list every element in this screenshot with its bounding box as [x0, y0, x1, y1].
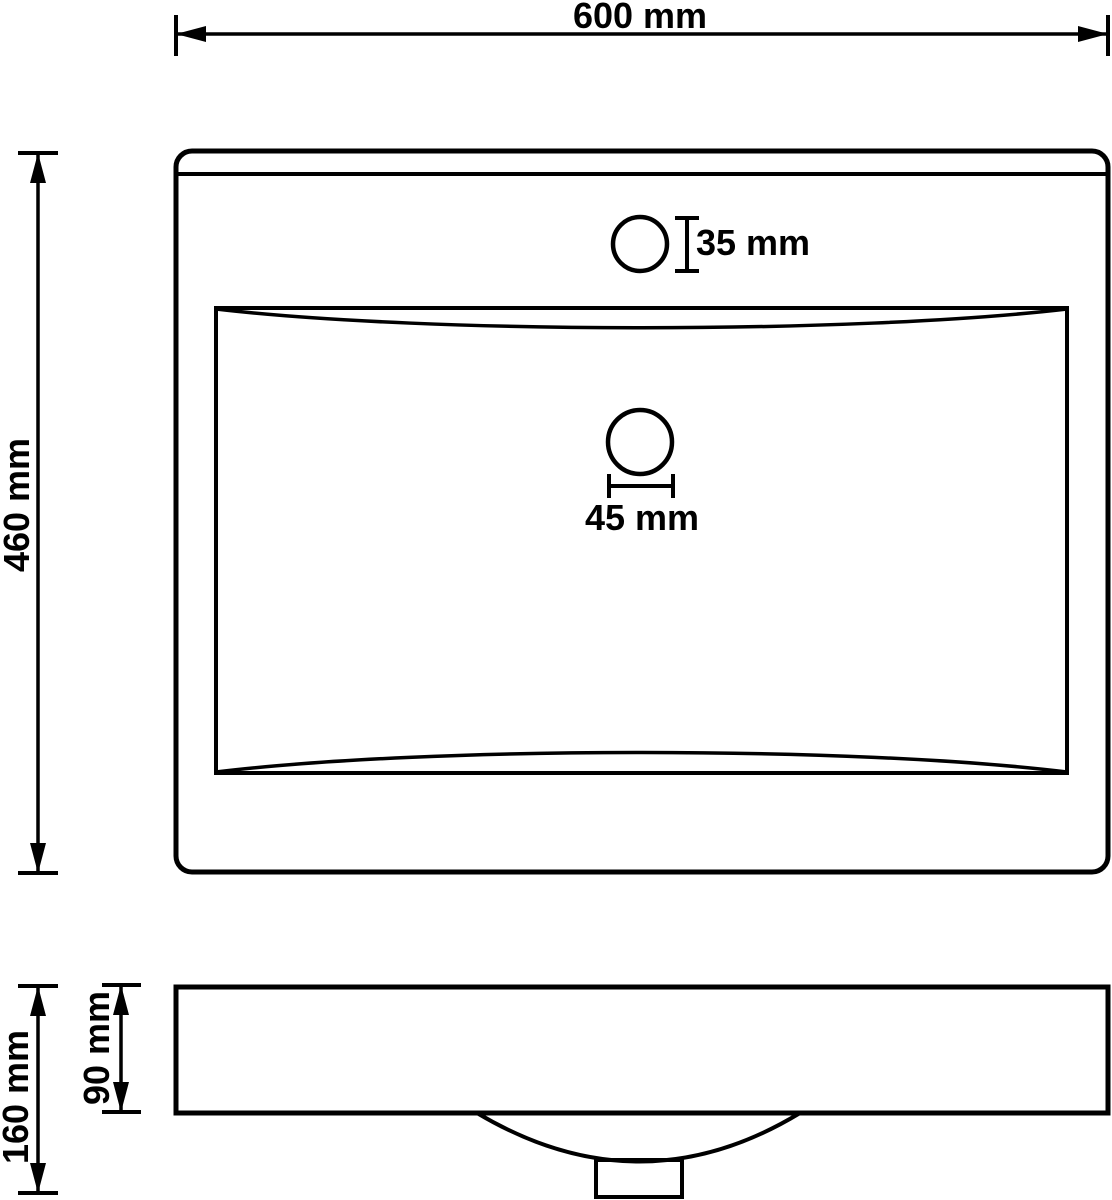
drain-hole-circle: [608, 410, 672, 474]
basin-height-dimension-label: 90 mm: [79, 963, 115, 1133]
height-dimension-label: 460 mm: [0, 420, 35, 590]
faucet-hole-circle: [613, 217, 667, 271]
basin-inner-top-curve: [216, 309, 1067, 328]
dim-600-left-arrow: [176, 26, 206, 42]
dim-600-right-arrow: [1078, 26, 1108, 42]
dim-460-bottom-arrow: [30, 843, 46, 873]
side-drain-pipe-outline: [596, 1160, 682, 1197]
basin-inner-bowl-outline: [216, 308, 1067, 773]
dimension-drain-45: [609, 474, 673, 498]
total-height-dimension-label: 160 mm: [0, 1012, 34, 1182]
width-dimension-label: 600 mm: [560, 0, 720, 34]
side-underside-curve: [477, 1113, 800, 1162]
basin-inner-bottom-curve: [216, 753, 1067, 773]
drain-hole-dimension-label: 45 mm: [562, 500, 722, 536]
technical-drawing-svg: [0, 0, 1112, 1200]
dim-460-top-arrow: [30, 153, 46, 183]
faucet-hole-dimension-label: 35 mm: [696, 225, 810, 261]
side-view: [176, 987, 1108, 1197]
technical-drawing-page: 600 mm 460 mm 35 mm 45 mm 160 mm 90 mm: [0, 0, 1112, 1200]
side-profile-outline: [176, 987, 1108, 1113]
